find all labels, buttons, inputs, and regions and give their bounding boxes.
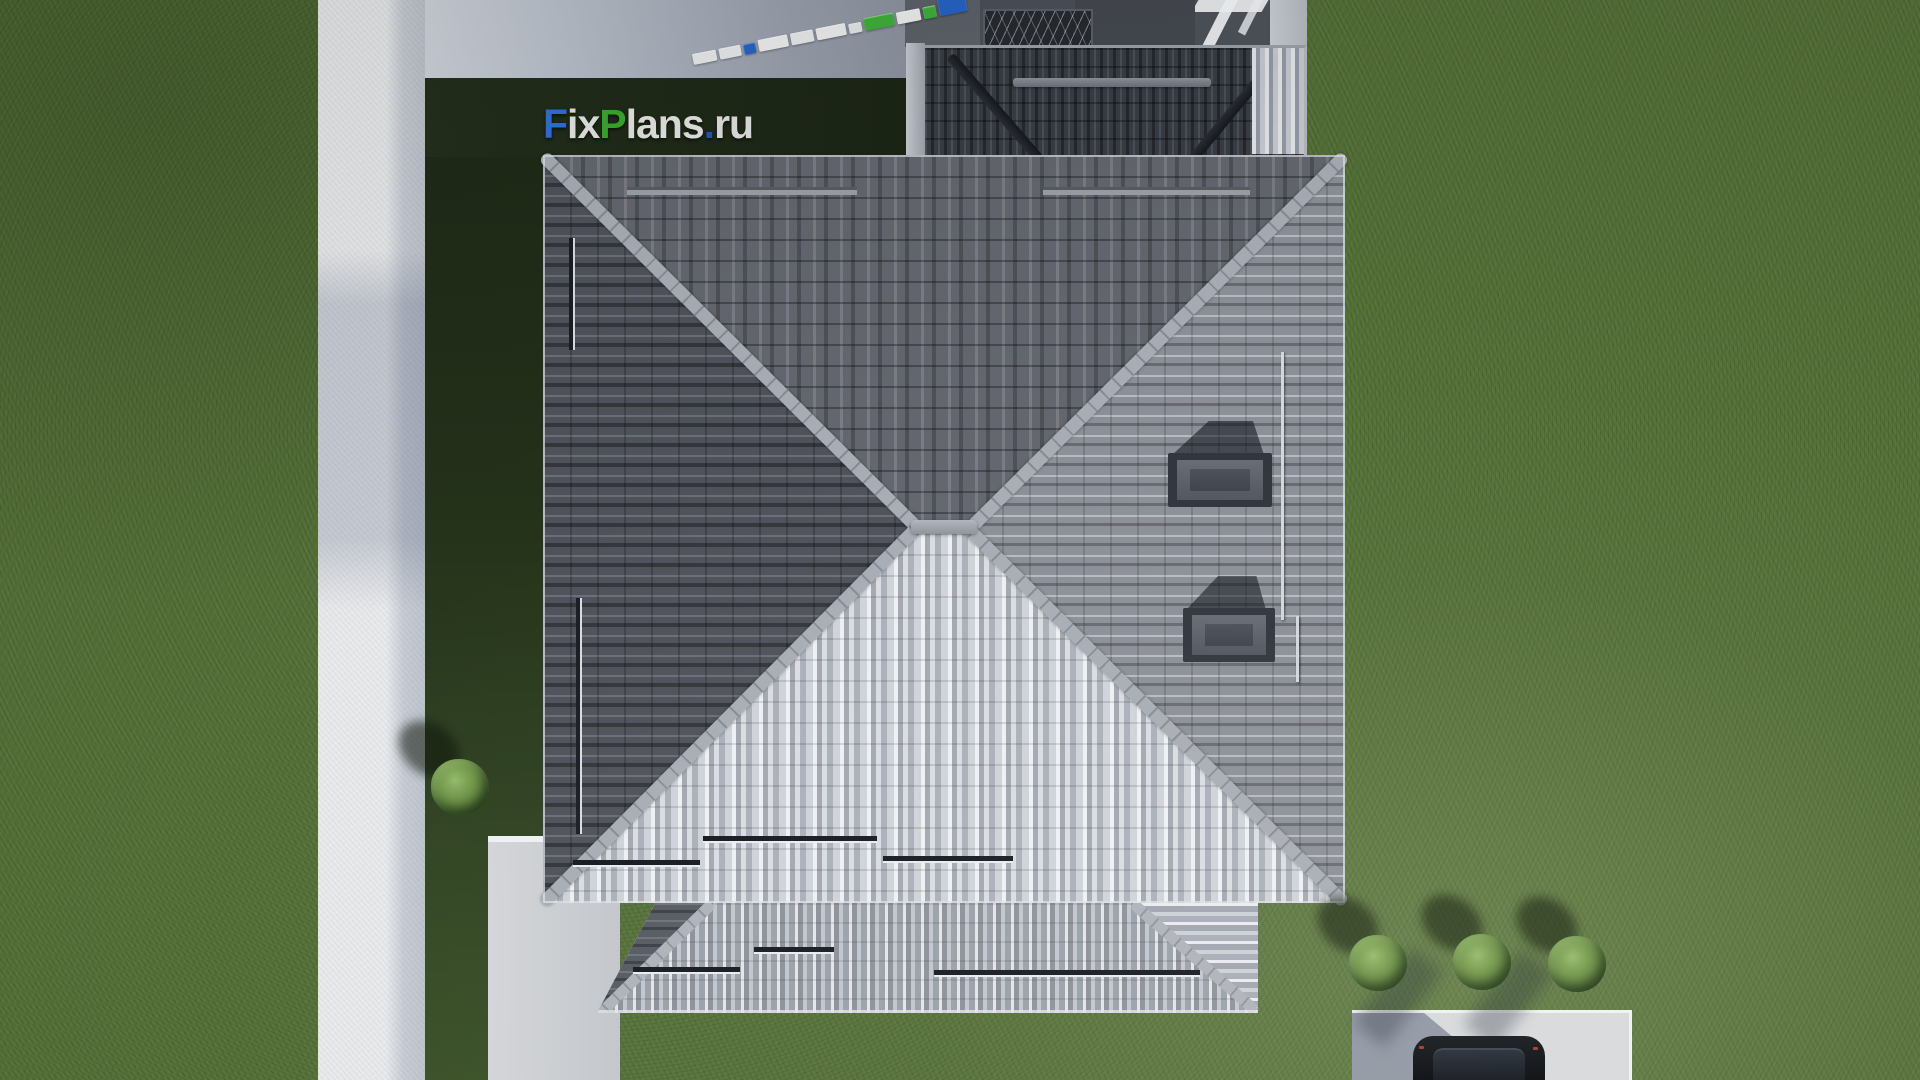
logo-part: ix	[567, 101, 599, 147]
garage-roof	[925, 45, 1307, 157]
snow-guard	[883, 856, 1013, 863]
snow-guard	[576, 598, 582, 834]
drain-grate	[983, 9, 1093, 47]
snow-guard	[1043, 187, 1250, 195]
bush	[1349, 935, 1407, 991]
porch-roof	[597, 903, 1258, 1013]
snow-guard	[703, 836, 877, 843]
driveway	[425, 0, 910, 78]
snow-guard	[627, 187, 857, 195]
bush	[1548, 936, 1606, 992]
sunlit-railing-area	[1195, 0, 1275, 46]
garage-valley-left	[946, 53, 1043, 163]
car-windshield	[1433, 1048, 1525, 1080]
skylight-glass	[1205, 624, 1253, 646]
bush	[431, 759, 489, 815]
garage-eave-trim	[906, 43, 925, 157]
tape-segment	[743, 42, 757, 55]
garage-sunlit-tiles	[1252, 48, 1304, 154]
scene-canvas: FixPlans.ru	[0, 0, 1920, 1080]
snow-guard	[1281, 352, 1284, 620]
main-roof	[543, 155, 1345, 903]
car	[1413, 1036, 1545, 1080]
logo-part: P	[599, 101, 625, 147]
logo-part: ru	[714, 101, 753, 147]
logo-part: .	[704, 101, 714, 147]
logo-part: lans	[626, 101, 704, 147]
snow-guard	[569, 238, 575, 350]
skylight-upper	[1168, 453, 1272, 507]
snow-guard	[754, 947, 834, 954]
watermark-logo: FixPlans.ru	[543, 104, 753, 145]
eave-trim	[543, 155, 1345, 903]
skylight-lower	[1183, 608, 1275, 662]
logo-part: F	[543, 101, 567, 147]
tape-segment	[922, 5, 937, 19]
snow-guard	[633, 967, 740, 974]
sidewalk-shadow-band	[318, 250, 425, 610]
car-light	[1419, 1046, 1424, 1049]
snow-guard	[1296, 616, 1299, 682]
terrace-light-edge	[1270, 0, 1307, 45]
porch-eave-trim	[597, 1010, 1258, 1013]
car-light	[1533, 1047, 1538, 1050]
snow-guard	[934, 970, 1200, 977]
snow-guard	[573, 860, 700, 867]
bush	[1453, 934, 1511, 990]
garage-ridge-cap	[1013, 78, 1211, 87]
skylight-glass	[1190, 469, 1250, 491]
